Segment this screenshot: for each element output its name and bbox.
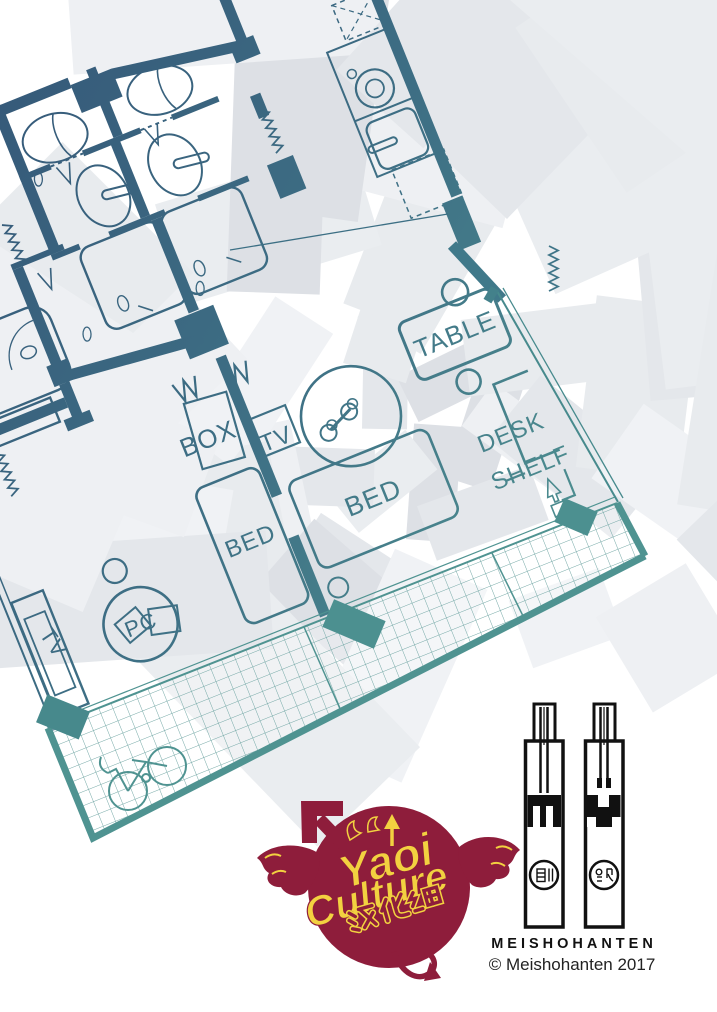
svg-text:© Meishohanten 2017: © Meishohanten 2017 bbox=[489, 955, 656, 974]
svg-text:MEISHOHANTEN: MEISHOHANTEN bbox=[491, 936, 657, 952]
